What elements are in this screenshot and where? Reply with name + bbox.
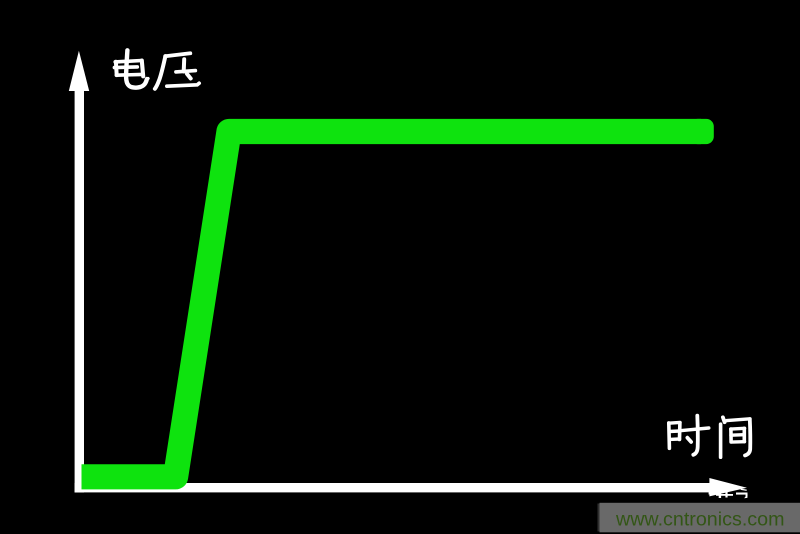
svg-text:www.cntronics.com: www.cntronics.com (615, 509, 784, 531)
